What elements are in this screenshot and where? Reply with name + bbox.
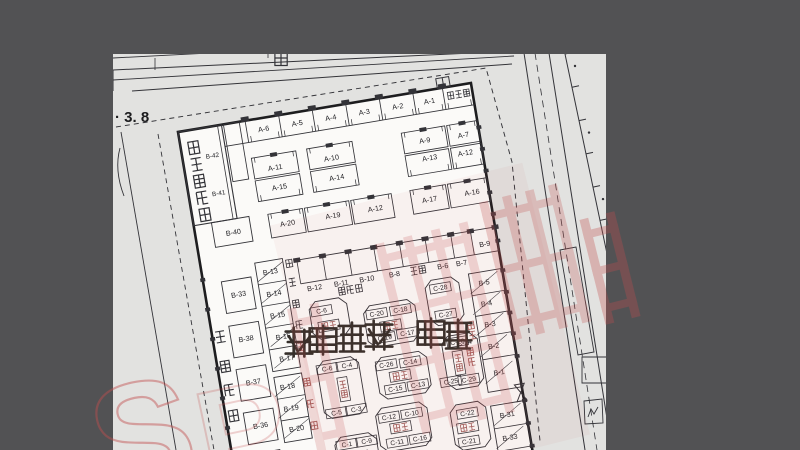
svg-text:A-9: A-9 xyxy=(419,135,432,146)
svg-text:· 3. 8: · 3. 8 xyxy=(115,109,149,126)
svg-text:A-5: A-5 xyxy=(291,118,304,129)
svg-text:A-2: A-2 xyxy=(392,101,405,112)
svg-text:A-3: A-3 xyxy=(358,107,371,118)
svg-text:A-4: A-4 xyxy=(324,112,337,123)
svg-text:A-7: A-7 xyxy=(457,130,470,141)
svg-text:A-1: A-1 xyxy=(423,96,436,107)
svg-text:A-6: A-6 xyxy=(257,123,270,134)
